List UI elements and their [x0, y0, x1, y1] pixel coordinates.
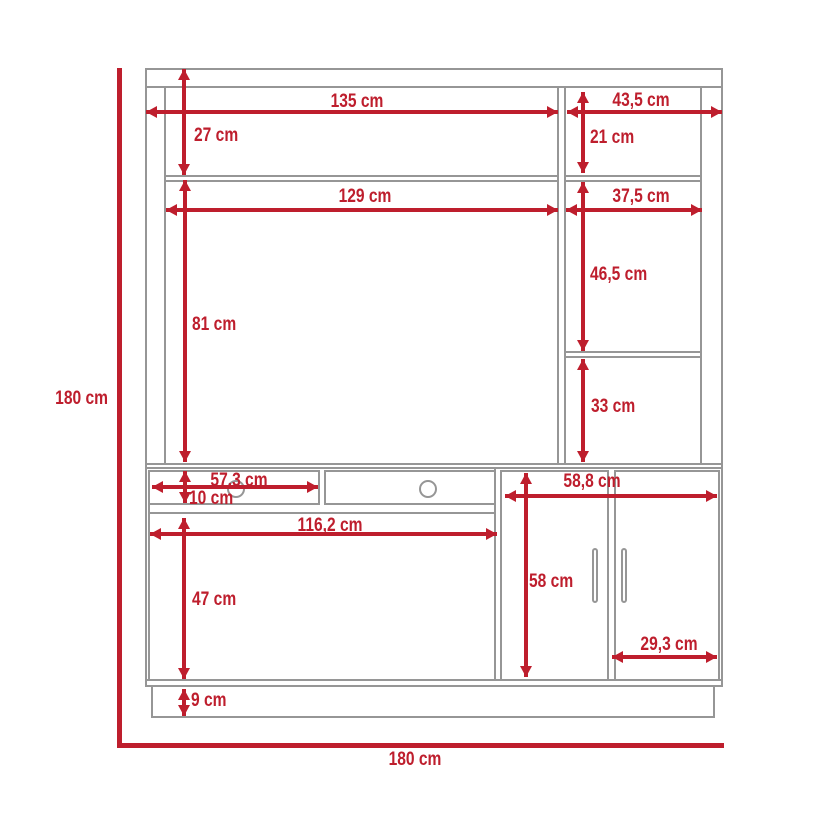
dim-label-right-upper-shelf-height: 46,5 cm: [590, 265, 647, 285]
dim-label-top-right-height: 21 cm: [590, 128, 634, 148]
dim-arrow-lower-opening-height: [182, 518, 186, 679]
under-drawer-shelf-line: [148, 512, 496, 514]
dim-label-drawer-height: 10 cm: [189, 489, 233, 509]
bottom-panel-line: [145, 679, 723, 681]
dim-arrow-doors-cabinet-height: [524, 473, 528, 677]
dim-arrow-doors-cabinet-width: [505, 494, 717, 498]
drawer-knob-right: [419, 480, 437, 498]
dim-arrow-tv-opening-height: [183, 180, 187, 462]
dim-label-tv-opening-height: 81 cm: [192, 315, 236, 335]
overall-height-label: 180 cm: [51, 389, 108, 409]
dim-label-top-left-width: 135 cm: [331, 92, 384, 112]
door-handle-left: [592, 548, 598, 603]
countertop-panel: [147, 463, 721, 469]
dim-arrow-door-width: [612, 655, 717, 659]
top-panel-line: [145, 86, 723, 88]
middle-partition-panel: [557, 88, 566, 465]
dim-arrow-tv-opening-width: [166, 208, 558, 212]
dim-label-door-width: 29,3 cm: [640, 635, 697, 655]
right-top-shelf: [566, 175, 700, 182]
dim-label-doors-cabinet-width: 58,8 cm: [563, 472, 620, 492]
dim-label-right-shelf-width: 37,5 cm: [612, 187, 669, 207]
dim-arrow-top-left-height: [182, 69, 186, 175]
dim-arrow-top-right-height: [581, 92, 585, 173]
dim-arrow-drawer-height: [183, 471, 187, 503]
overall-width-label: 180 cm: [389, 750, 442, 770]
left-side-inner-line: [164, 88, 166, 465]
dim-arrow-right-upper-shelf-height: [581, 182, 585, 351]
lower-left-opening-right-edge: [494, 467, 496, 681]
dim-label-doors-cabinet-height: 58 cm: [529, 572, 573, 592]
overall-width-bracket: [117, 743, 724, 748]
door-handle-right: [621, 548, 627, 603]
right-side-inner-line: [700, 88, 702, 465]
left-top-shelf: [166, 175, 557, 182]
dim-label-tv-opening-width: 129 cm: [339, 187, 392, 207]
dim-label-base-height: 9 cm: [191, 691, 227, 711]
dim-label-right-lower-shelf-height: 33 cm: [591, 397, 635, 417]
right-middle-shelf: [566, 351, 700, 358]
dim-arrow-right-shelf-width: [566, 208, 702, 212]
drawer-right: [324, 470, 496, 505]
dim-label-top-right-width: 43,5 cm: [612, 91, 669, 111]
dim-arrow-right-lower-shelf-height: [581, 359, 585, 462]
plinth-base: [151, 685, 715, 718]
dim-arrow-base-height: [182, 689, 186, 716]
dim-label-top-left-height: 27 cm: [194, 126, 238, 146]
dim-label-lower-opening-height: 47 cm: [192, 590, 236, 610]
furniture-dimension-diagram: 180 cm 180 cm 135 cm 43,5 cm 27 cm 21 cm…: [0, 0, 840, 840]
dim-label-lower-opening-width: 116,2 cm: [298, 516, 363, 536]
door-divider-panel: [607, 470, 616, 681]
overall-height-bracket: [117, 68, 122, 746]
